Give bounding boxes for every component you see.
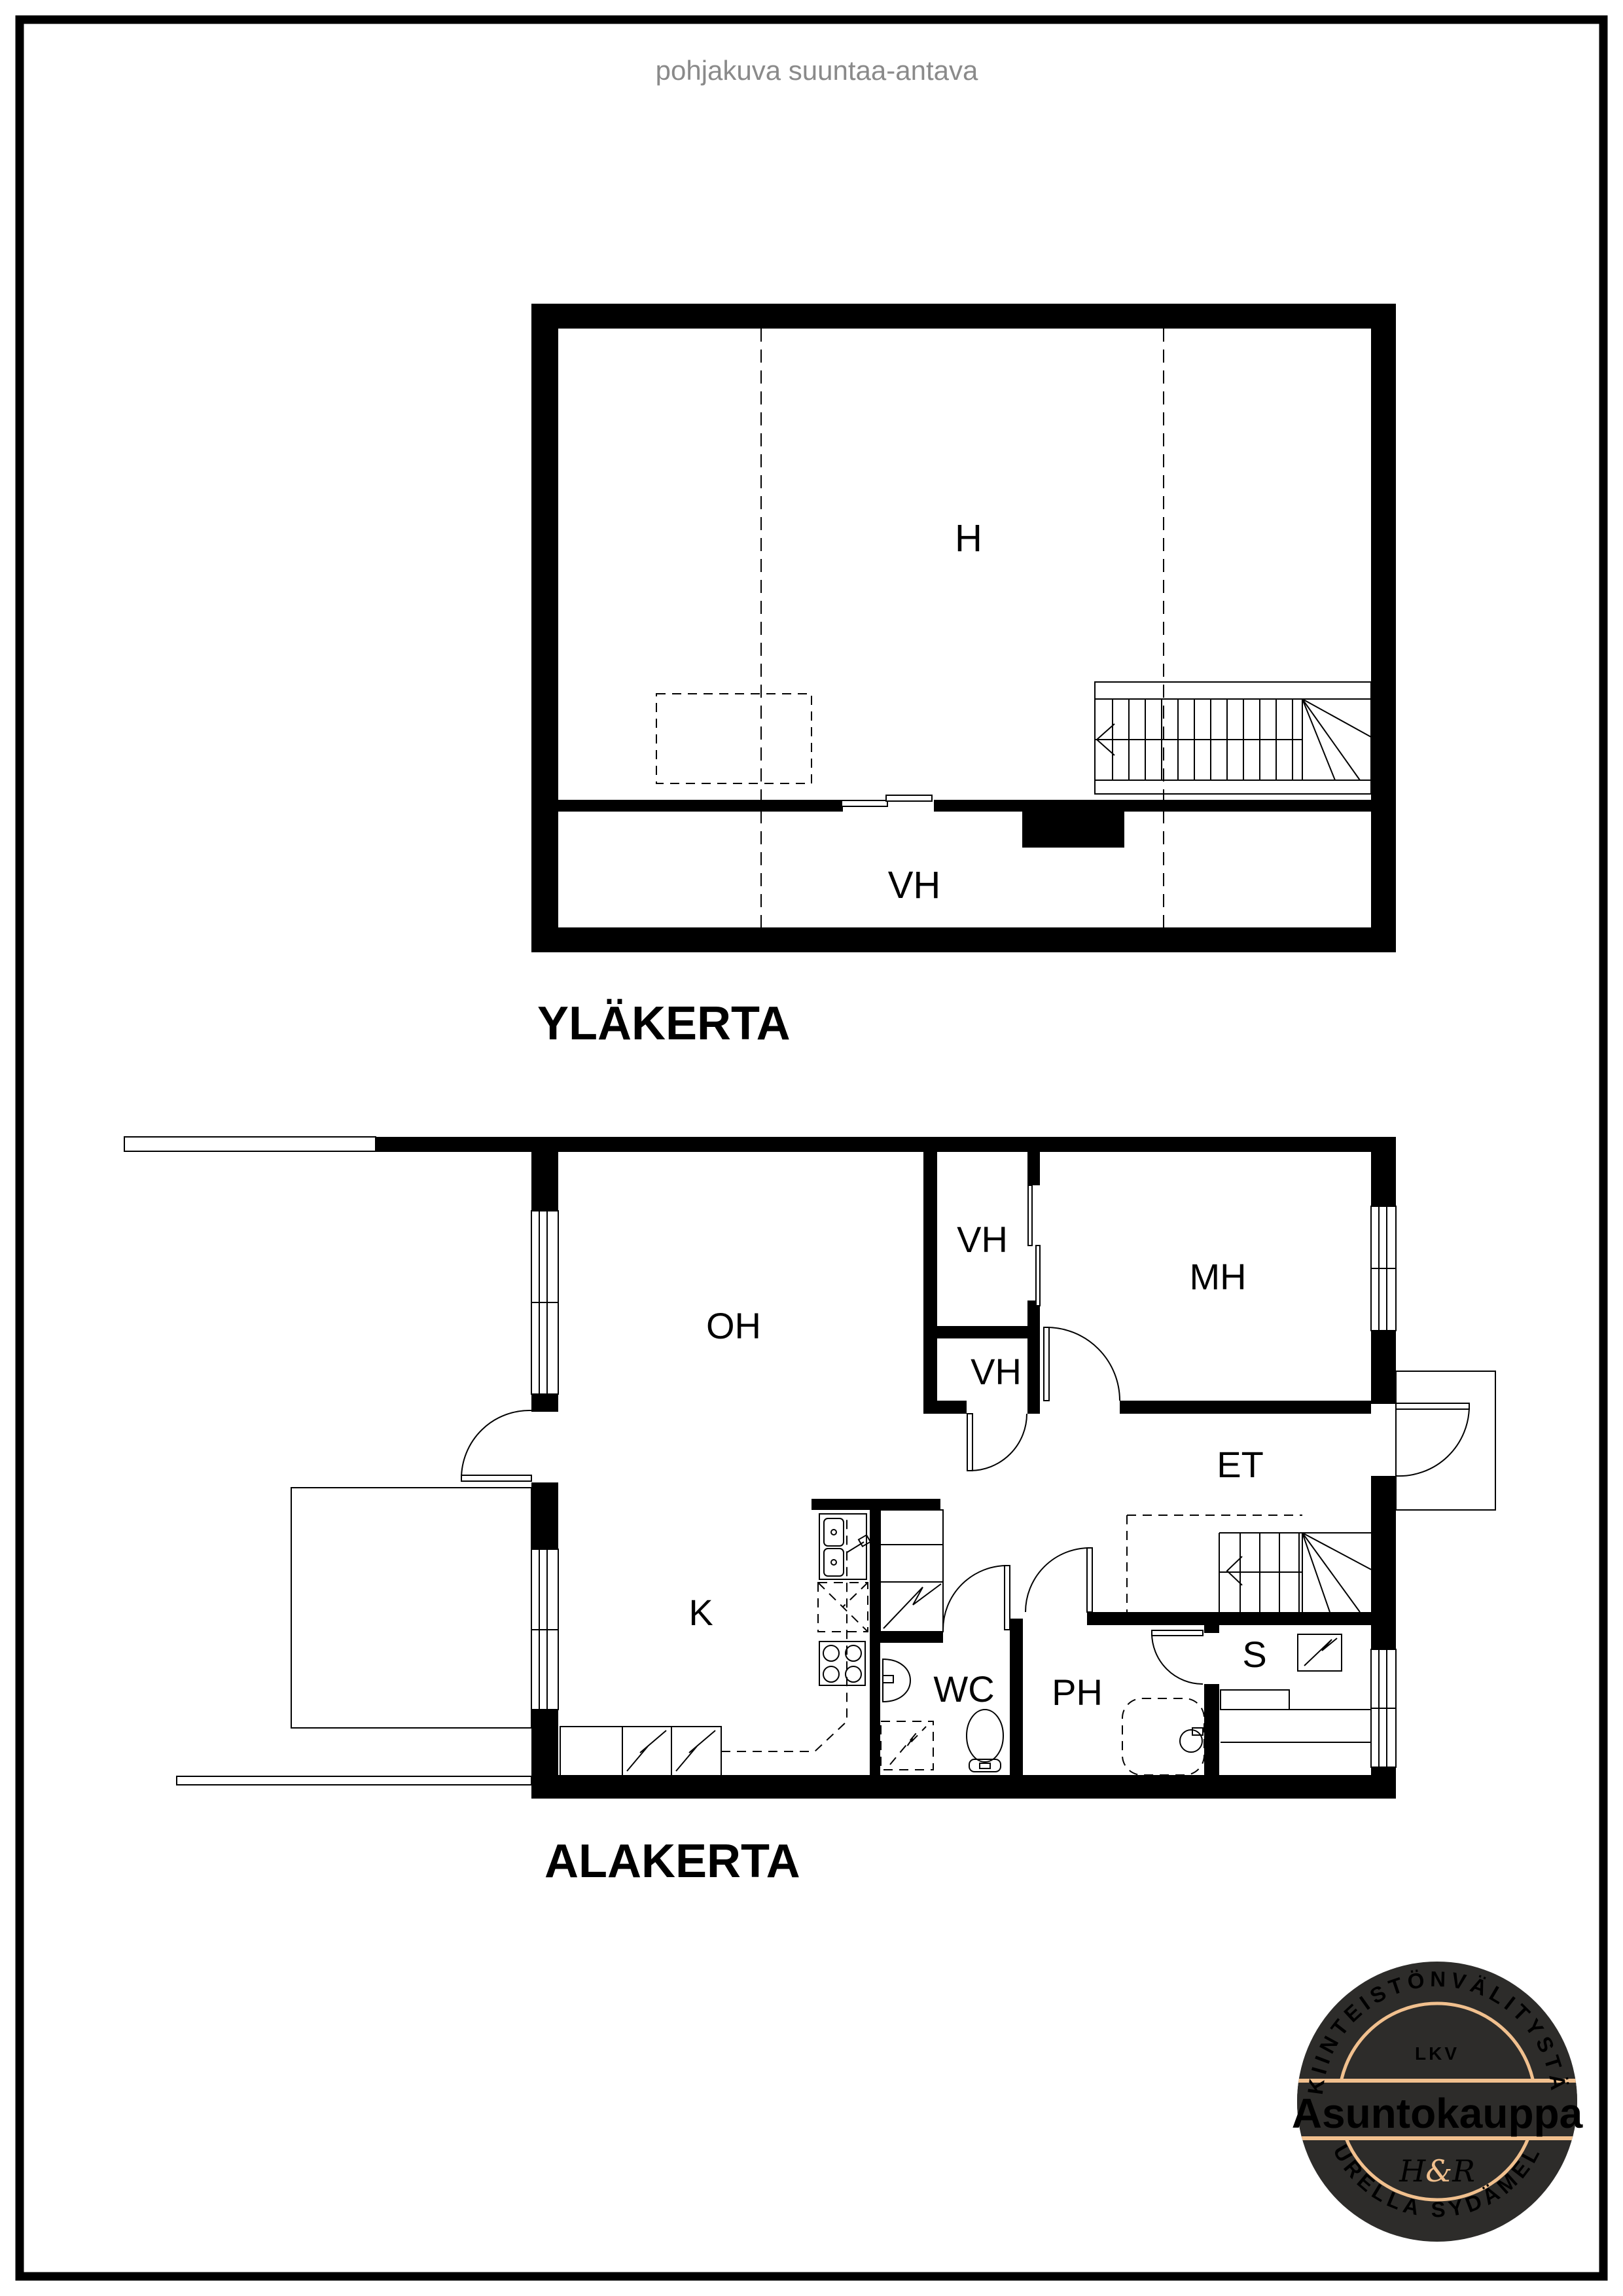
door-vh2 [967, 1414, 1027, 1471]
wc-toilet [967, 1710, 1003, 1772]
wc-washbasin [883, 1659, 910, 1702]
logo-brand-text: Asuntokauppa [1292, 2090, 1583, 2137]
window-oh-left [531, 1211, 558, 1394]
floor-plan-page: pohjakuva suuntaa-antava [0, 0, 1623, 2296]
porch-outline [1396, 1371, 1495, 1510]
room-label-vh-upper: VH [888, 864, 941, 906]
kitchen-dishwasher [818, 1583, 868, 1632]
terrace-outline [291, 1488, 531, 1728]
door-entrance [1396, 1403, 1469, 1476]
upper-divider-wall [558, 800, 1371, 812]
chimney-block [1022, 800, 1124, 848]
kitchen-sink [819, 1514, 870, 1579]
page-title: pohjakuva suuntaa-antava [656, 55, 978, 86]
upper-sliding-door [842, 795, 932, 806]
stairs-upper [1095, 682, 1371, 794]
eaves-line-bottom [177, 1776, 531, 1785]
lower-floor-title: ALAKERTA [544, 1835, 800, 1888]
ph-fixtures [1122, 1698, 1204, 1775]
upper-exterior-walls [531, 304, 1396, 952]
wc-boiler [881, 1721, 933, 1770]
wc-basin-tap [883, 1676, 893, 1683]
upper-floor-plan: H VH [531, 304, 1396, 952]
window-s-right [1371, 1649, 1396, 1767]
sliding-door-vh1 [1028, 1185, 1040, 1306]
room-label-et: ET [1217, 1444, 1264, 1485]
door-terrace [461, 1410, 531, 1481]
room-label-vh2: VH [971, 1351, 1022, 1392]
room-label-oh: OH [706, 1305, 761, 1346]
ph-shower-area [1122, 1698, 1204, 1775]
upper-floor-title: YLÄKERTA [537, 997, 791, 1050]
sauna-stove [1298, 1634, 1342, 1671]
room-label-h: H [955, 517, 982, 560]
ph-washbasin [1180, 1730, 1202, 1752]
door-ph [1026, 1548, 1092, 1612]
window-k-left [531, 1549, 558, 1710]
kitchen-counter-row [560, 1727, 721, 1776]
room-label-mh: MH [1189, 1256, 1246, 1297]
kitchen-cupboards [880, 1510, 943, 1632]
logo-monogram: H&R [1399, 2153, 1475, 2189]
doors [461, 1185, 1469, 1684]
logo-lkv-text: LKV [1415, 2043, 1459, 2064]
window-mh-right [1371, 1206, 1396, 1331]
logo-stamp: KIINTEISTÖNVÄLITYSTÄ LKV Asuntokauppa H&… [1292, 1962, 1583, 2242]
stairs-lower [1127, 1515, 1371, 1612]
upper-dashed-hatch-rect [656, 694, 811, 783]
room-label-wc: WC [933, 1668, 994, 1710]
door-sauna [1152, 1630, 1203, 1684]
kitchen-stove [819, 1641, 865, 1685]
room-label-k: K [688, 1592, 713, 1633]
room-label-ph: PH [1052, 1672, 1103, 1713]
eaves-line-top [124, 1137, 376, 1151]
room-label-s: S [1242, 1634, 1266, 1675]
door-mh [1044, 1327, 1120, 1401]
sauna-benches [1221, 1690, 1371, 1742]
door-wc [943, 1566, 1010, 1630]
lower-floor-plan: OH K VH VH MH ET WC PH S [124, 1137, 1495, 1799]
room-label-vh1: VH [957, 1219, 1008, 1260]
